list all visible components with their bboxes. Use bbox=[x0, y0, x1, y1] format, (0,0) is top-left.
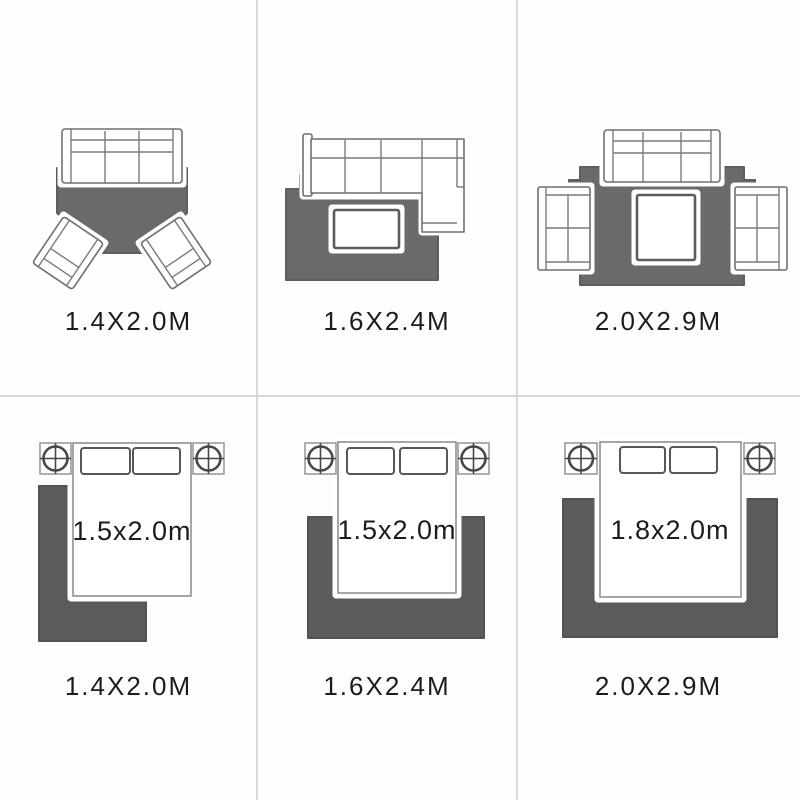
rug-size-caption: 1.4X2.0M bbox=[0, 671, 257, 702]
coffee-table-icon bbox=[635, 193, 697, 262]
pillow-icon bbox=[347, 448, 394, 474]
coffee-table-icon bbox=[332, 208, 401, 250]
bed-size-label: 1.8x2.0m bbox=[610, 515, 729, 545]
pillow-icon bbox=[620, 447, 665, 473]
loveseat-icon bbox=[537, 186, 591, 271]
rug-size-caption: 2.0X2.9M bbox=[517, 671, 800, 702]
sofa-icon bbox=[61, 128, 183, 184]
bed-icon: 1.5x2.0m bbox=[336, 440, 458, 595]
bed-icon: 1.5x2.0m bbox=[71, 441, 193, 598]
nightstand-icon bbox=[193, 443, 224, 474]
bed-size-label: 1.5x2.0m bbox=[72, 516, 191, 546]
loveseat-icon bbox=[734, 186, 788, 271]
rug-size-caption: 1.6X2.4M bbox=[257, 671, 517, 702]
sofa-icon bbox=[603, 129, 721, 183]
nightstand-icon bbox=[40, 443, 71, 474]
pillow-icon bbox=[81, 448, 130, 474]
rug-size-caption: 1.4X2.0M bbox=[0, 306, 257, 337]
rug-size-caption: 1.6X2.4M bbox=[257, 306, 517, 337]
panel-bedroom-2: 1.5x2.0m bbox=[257, 396, 517, 800]
bed-size-label: 1.5x2.0m bbox=[337, 515, 456, 545]
pillow-icon bbox=[400, 448, 447, 474]
panel-bedroom-3: 1.8x2.0m bbox=[517, 396, 800, 800]
pillow-icon bbox=[133, 448, 180, 474]
bed-icon: 1.8x2.0m bbox=[598, 440, 743, 599]
panel-bedroom-1: 1.5x2.0m bbox=[0, 396, 257, 800]
nightstand-icon bbox=[744, 443, 775, 474]
nightstand-icon bbox=[305, 443, 336, 474]
nightstand-icon bbox=[458, 443, 489, 474]
rug-size-guide: 1.4X2.0M 1.6X2.4M bbox=[0, 0, 800, 800]
nightstand-icon bbox=[565, 443, 597, 474]
rug-size-caption: 2.0X2.9M bbox=[517, 306, 800, 337]
pillow-icon bbox=[670, 447, 717, 473]
